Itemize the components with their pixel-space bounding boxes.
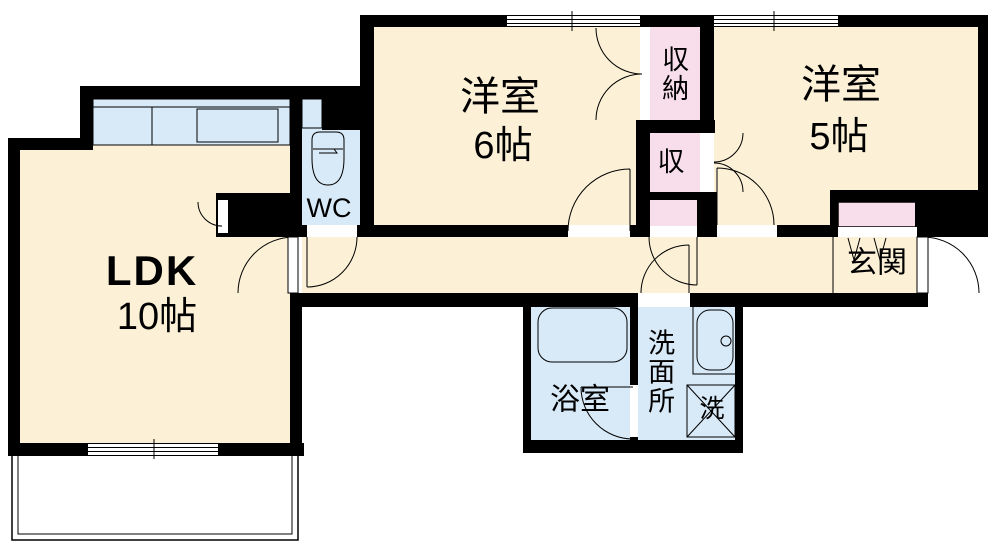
wall xyxy=(630,225,650,237)
wc-label: WC xyxy=(307,194,352,222)
wall xyxy=(830,190,988,202)
window-western5 xyxy=(714,16,838,26)
balcony xyxy=(12,456,298,540)
wall xyxy=(357,225,568,237)
kitchen-counter xyxy=(93,99,290,145)
wall xyxy=(322,99,360,130)
western6-door-opening xyxy=(568,225,630,237)
ldk-label: LDK xyxy=(106,249,198,293)
wall xyxy=(978,27,988,193)
wall xyxy=(735,293,743,453)
shoe-cabinet-face xyxy=(838,227,917,237)
wall xyxy=(360,27,374,225)
washroom-door-opening xyxy=(638,294,690,306)
wall xyxy=(523,293,531,453)
wall xyxy=(697,200,717,237)
wall xyxy=(290,99,302,237)
closet-small-door-face xyxy=(700,133,714,192)
ldk-storage-door-face xyxy=(218,200,228,233)
wall xyxy=(636,133,650,192)
wall xyxy=(523,440,743,453)
ldk-door-leaf xyxy=(288,237,298,293)
bathroom-label: 浴室 xyxy=(550,384,610,416)
window-western6 xyxy=(507,16,640,26)
closet-small-label: 収 xyxy=(658,148,685,176)
wall xyxy=(8,138,20,456)
western5-size-label: 5帖 xyxy=(809,118,868,158)
wall xyxy=(302,225,307,237)
entrance-door-swing xyxy=(923,237,979,293)
hallway-and-entrance-floor xyxy=(302,237,928,293)
wc-duct xyxy=(302,99,322,128)
wall xyxy=(636,192,717,200)
floorplan: LDK 10帖 洋室 6帖 洋室 5帖 収納 収 WC 玄関 浴室 洗面所 洗 xyxy=(0,0,1000,559)
window-ldk xyxy=(88,444,218,455)
wall xyxy=(777,225,838,237)
western6-size-label: 6帖 xyxy=(473,127,532,167)
room-western5 xyxy=(714,27,978,192)
entrance-door-leaf xyxy=(917,237,928,293)
ldk-size-label: 10帖 xyxy=(117,298,197,338)
wall xyxy=(302,293,638,307)
wall xyxy=(80,86,360,99)
room-bathroom xyxy=(531,307,630,440)
closet-large-label: 収納 xyxy=(659,45,687,103)
western5-door-opening xyxy=(717,225,777,237)
laundry-label: 洗 xyxy=(699,396,724,422)
hall-storage-opening xyxy=(650,226,697,237)
wall xyxy=(700,27,714,120)
wall xyxy=(290,293,302,456)
wc-door-opening xyxy=(307,225,357,237)
washroom-label: 洗面所 xyxy=(645,329,673,416)
wall xyxy=(630,307,638,385)
western6-label: 洋室 xyxy=(460,76,540,118)
hall-storage xyxy=(650,200,697,228)
wall xyxy=(915,202,988,237)
bathroom-door-opening xyxy=(630,385,638,437)
wall xyxy=(8,138,93,150)
shoe-cabinet xyxy=(838,202,917,227)
entrance-label: 玄関 xyxy=(847,247,907,279)
western5-label: 洋室 xyxy=(801,64,881,106)
wall xyxy=(360,15,988,27)
wall xyxy=(636,120,715,133)
